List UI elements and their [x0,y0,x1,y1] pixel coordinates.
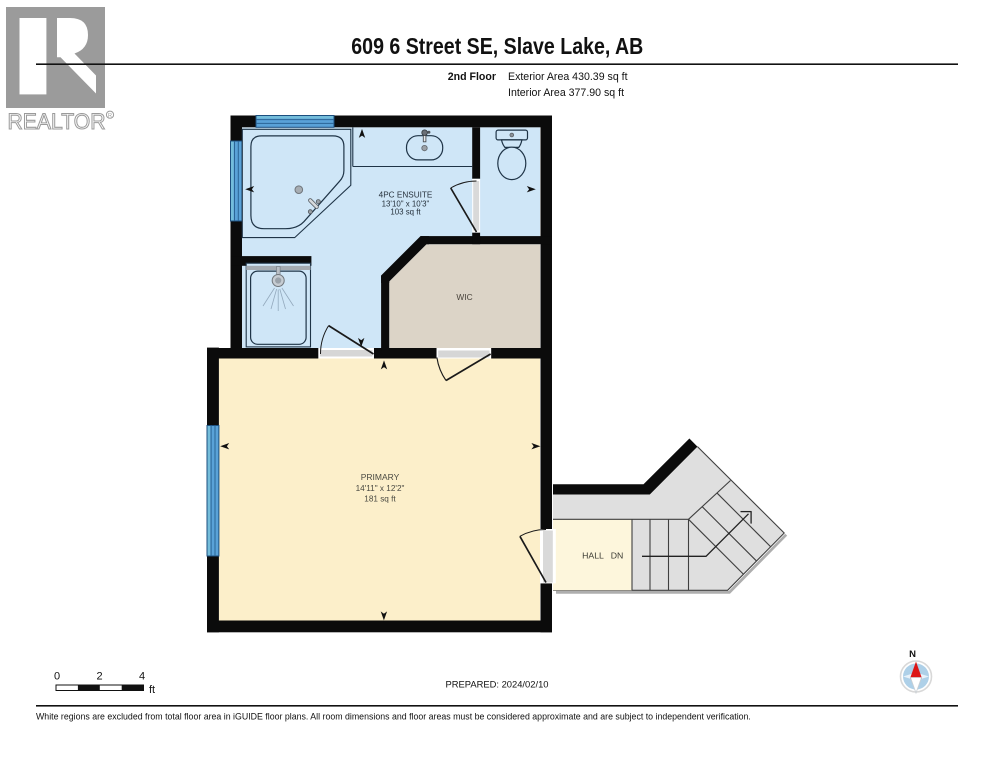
svg-text:0: 0 [54,671,60,683]
svg-text:DN: DN [611,550,624,560]
svg-text:2: 2 [96,671,102,683]
svg-text:181 sq ft: 181 sq ft [364,495,396,504]
svg-text:Exterior Area 430.39 sq ft: Exterior Area 430.39 sq ft [508,71,628,83]
svg-text:N: N [909,649,916,660]
svg-text:4PC ENSUITE: 4PC ENSUITE [379,191,433,200]
svg-text:PREPARED: 2024/02/10: PREPARED: 2024/02/10 [445,679,548,690]
svg-text:White regions are excluded fro: White regions are excluded from total fl… [36,712,751,722]
svg-text:HALL: HALL [582,550,604,560]
svg-text:2nd Floor: 2nd Floor [448,71,496,83]
svg-text:REALTOR: REALTOR [8,109,106,134]
svg-text:14'11" x 12'2": 14'11" x 12'2" [356,484,405,493]
svg-text:103 sq ft: 103 sq ft [390,208,421,217]
svg-text:WIC: WIC [456,292,472,302]
svg-text:Interior Area 377.90 sq ft: Interior Area 377.90 sq ft [508,87,624,99]
svg-text:4: 4 [139,671,145,683]
svg-text:PRIMARY: PRIMARY [361,472,400,482]
svg-text:609 6 Street SE, Slave Lake, A: 609 6 Street SE, Slave Lake, AB [351,33,643,59]
svg-text:ft: ft [149,684,155,696]
svg-text:R: R [108,113,112,119]
